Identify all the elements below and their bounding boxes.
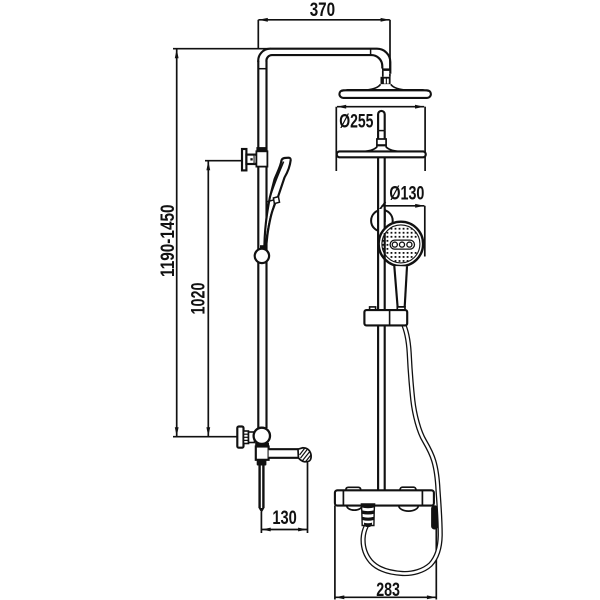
- svg-text:130: 130: [272, 508, 296, 529]
- svg-text:1020: 1020: [188, 283, 209, 315]
- svg-text:Ø255: Ø255: [339, 112, 374, 133]
- svg-text:Ø130: Ø130: [389, 183, 424, 204]
- svg-text:370: 370: [310, 0, 335, 21]
- svg-text:283: 283: [376, 580, 400, 600]
- svg-text:1190-1450: 1190-1450: [158, 204, 179, 277]
